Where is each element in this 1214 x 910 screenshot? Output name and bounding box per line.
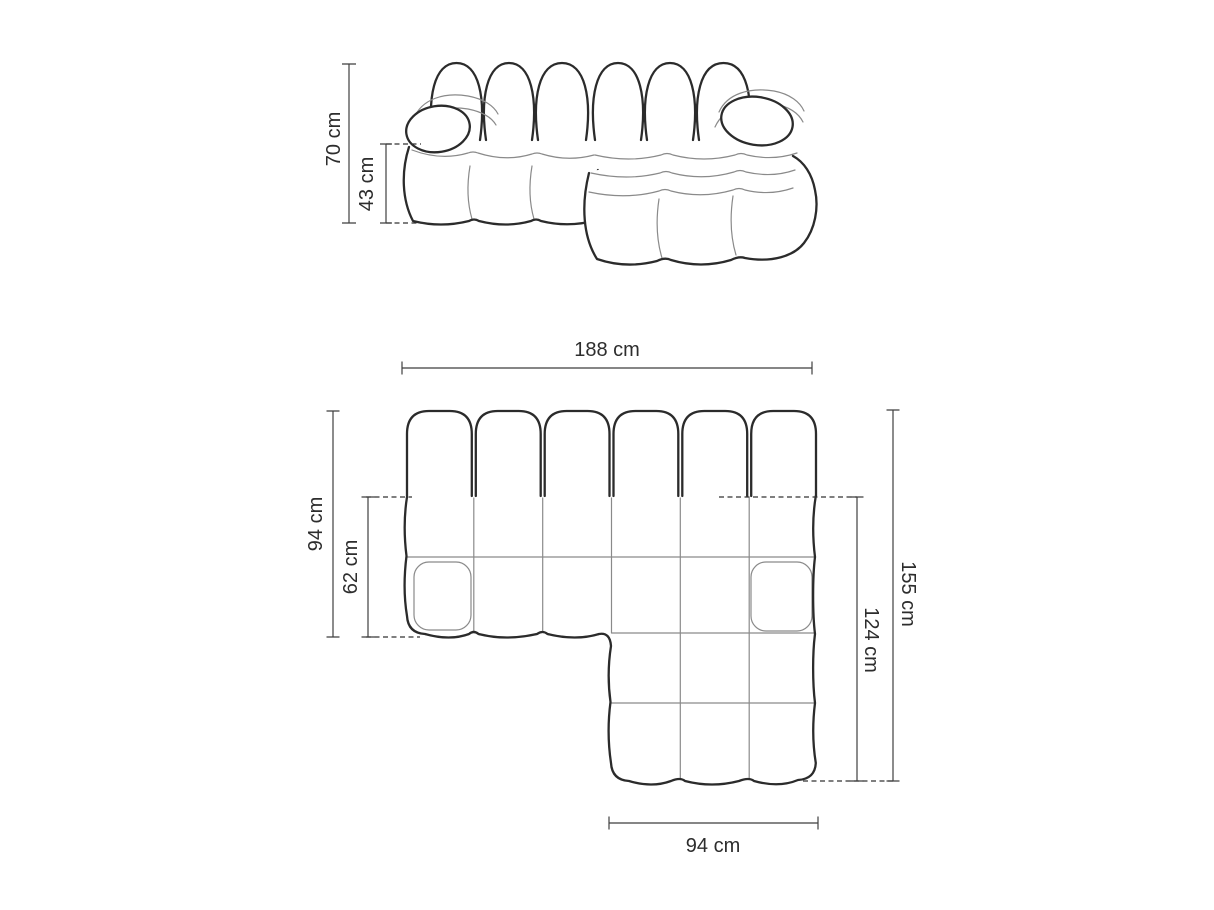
dim-label-top-chaise-width: 94 cm [686, 835, 740, 857]
dim-label-top-seat-depth: 62 cm [340, 540, 362, 594]
dimension-top-width: 188 cm [402, 339, 812, 375]
plan-back-cushion [545, 411, 610, 496]
dimension-front-height: 70 cm [323, 64, 356, 223]
dim-label-front-height: 70 cm [323, 112, 345, 166]
back-cushion [484, 63, 534, 140]
front-back-cushions [431, 63, 750, 140]
back-cushion [536, 63, 588, 140]
dimension-front-seat-height: 43 cm [356, 144, 392, 223]
diagram-canvas: 70 cm 43 cm [0, 0, 1214, 910]
dimension-top-chaise-depth: 124 cm [851, 497, 883, 781]
plan-back-cushion [614, 411, 679, 496]
dim-label-top-width: 188 cm [574, 339, 640, 361]
dim-label-front-seat-height: 43 cm [356, 157, 378, 211]
dimension-top-depth: 94 cm [305, 411, 340, 637]
dimension-top-seat-depth: 62 cm [340, 497, 375, 637]
back-cushion [593, 63, 643, 140]
plan-back-cushion [751, 411, 816, 496]
plan-back-cushion [407, 411, 472, 496]
dim-label-top-depth: 94 cm [305, 497, 327, 551]
top-view [405, 410, 818, 785]
front-view [403, 63, 817, 265]
front-chaise-block [584, 148, 816, 265]
dimension-top-total-depth: 155 cm [887, 410, 920, 781]
dimension-top-chaise-width: 94 cm [609, 817, 818, 858]
sofa-dimension-diagram: 70 cm 43 cm [0, 0, 1214, 910]
plan-back-cushion [476, 411, 541, 496]
dim-label-top-total-depth: 155 cm [897, 561, 919, 627]
plan-back-cushion [682, 411, 747, 496]
dim-label-top-chaise-depth: 124 cm [860, 607, 882, 673]
back-cushion [645, 63, 695, 140]
